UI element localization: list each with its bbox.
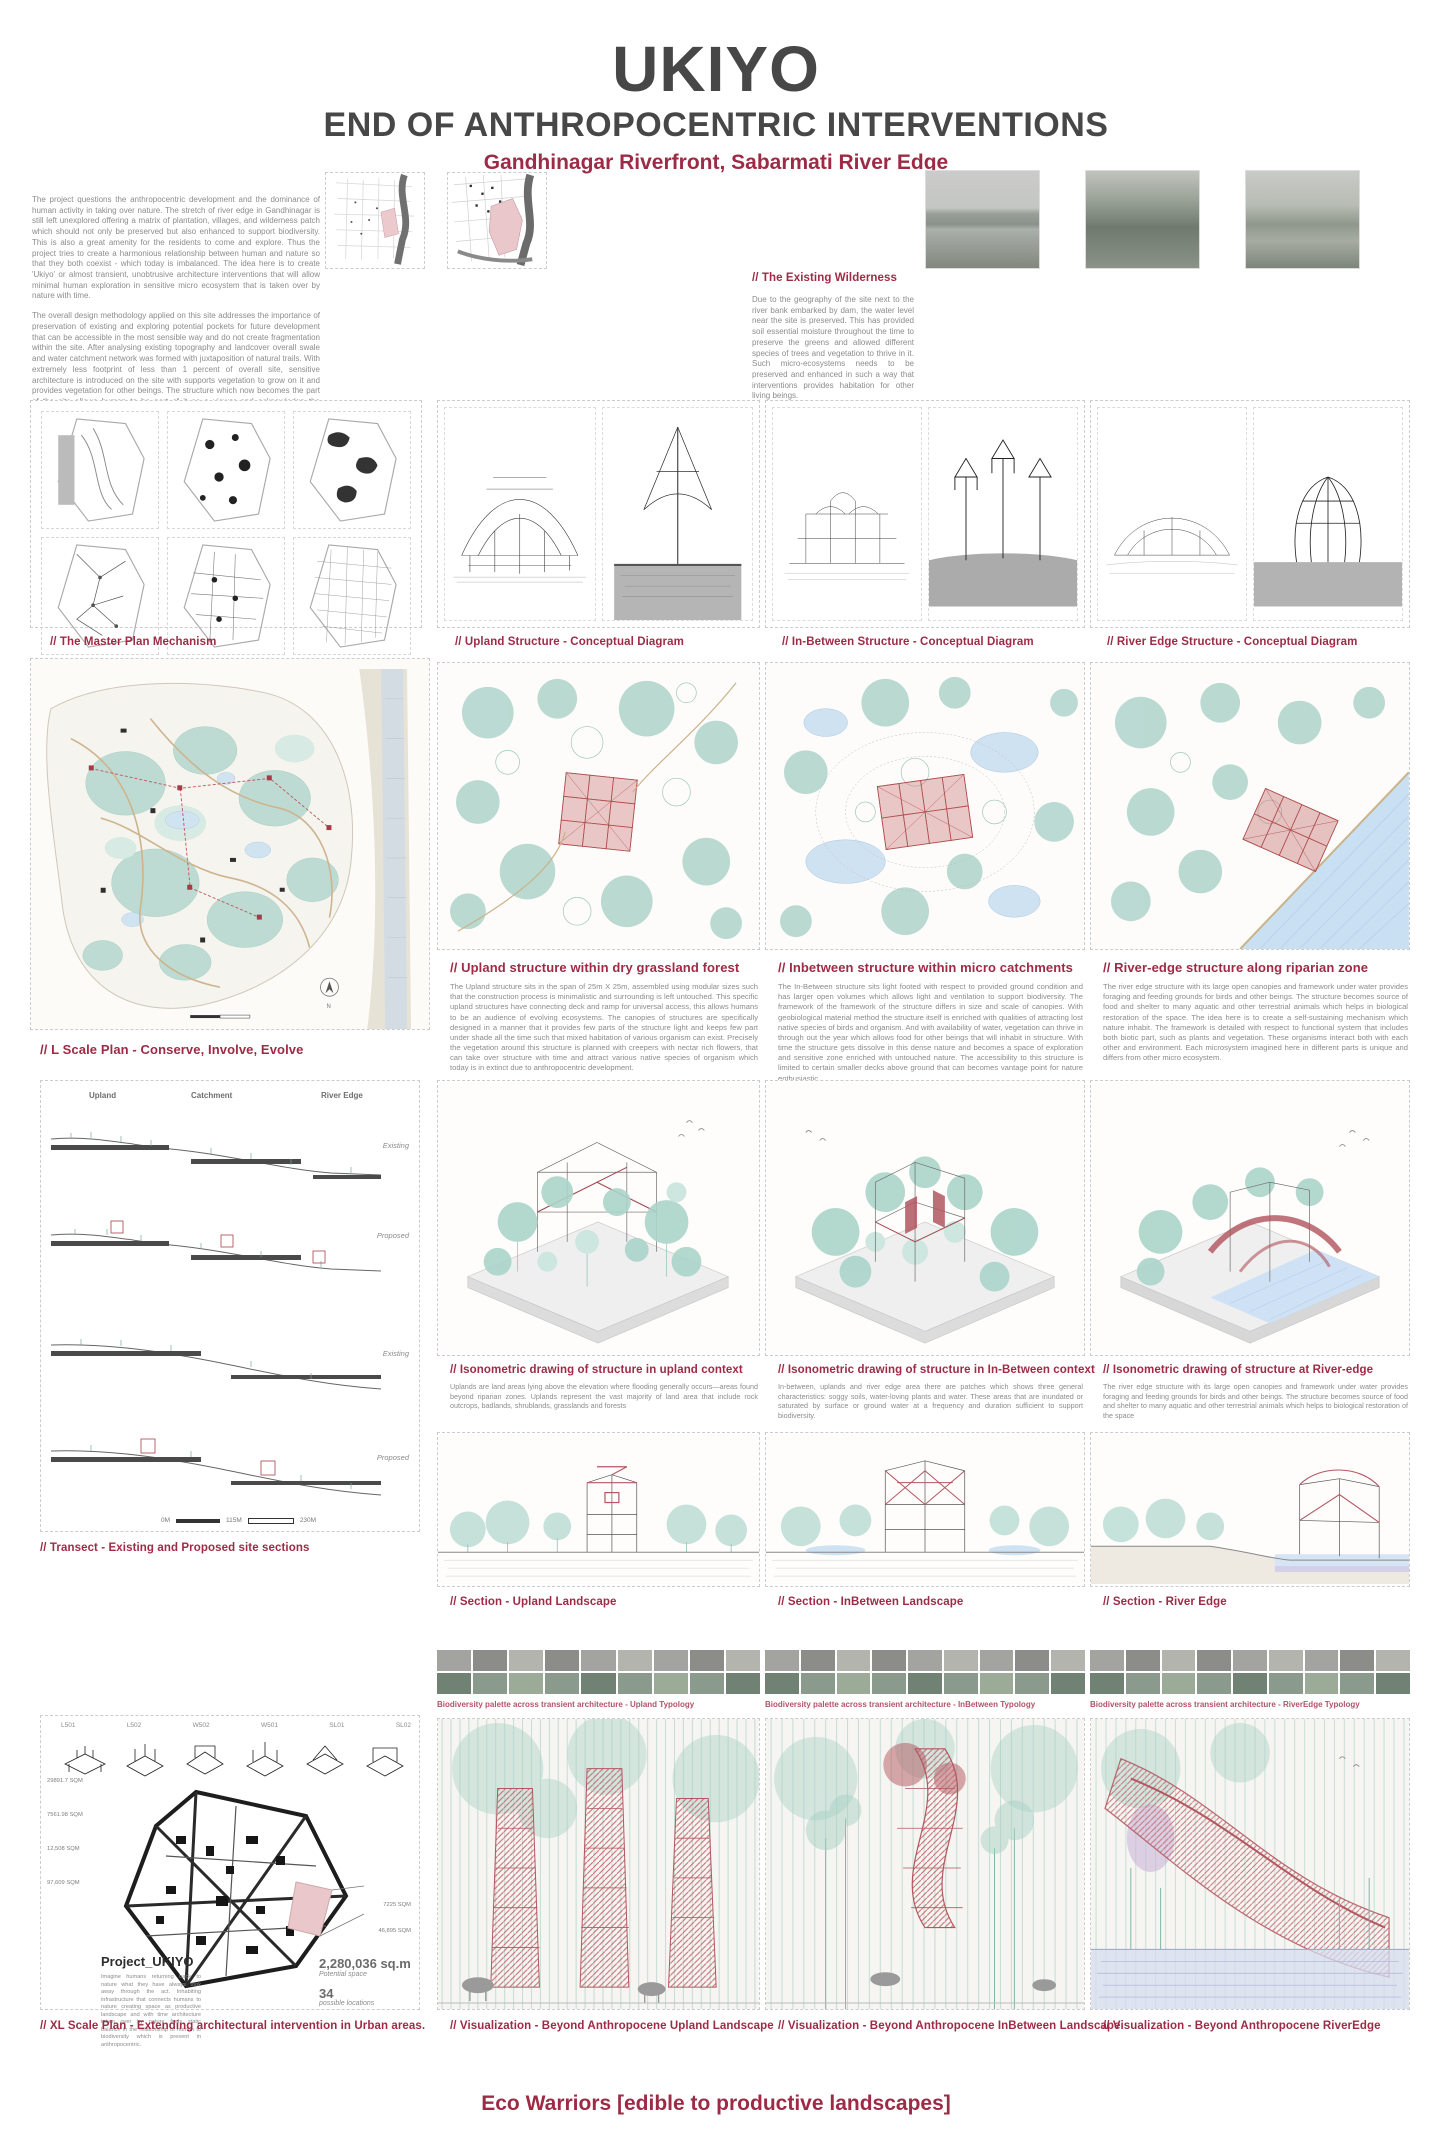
xl-area-right-2: 46,895 SQM <box>378 1928 411 1934</box>
xl-code-5: SL01 <box>329 1722 344 1729</box>
biodiversity-strip-upland <box>437 1650 760 1694</box>
transect-strip-existing-1 <box>51 1109 381 1195</box>
caption-bio-riveredge: Biodiversity palette across transient ar… <box>1090 1700 1360 1709</box>
xl-stat1-label: Potential space <box>319 1971 367 1978</box>
caption-riveredge-concept: // River Edge Structure - Conceptual Dia… <box>1107 636 1357 648</box>
mechanism-map-6 <box>293 537 411 655</box>
caption-bio-inbetween: Biodiversity palette across transient ar… <box>765 1700 1035 1709</box>
caption-viz-riveredge: // Visualization - Beyond Anthropocene R… <box>1103 2020 1381 2032</box>
xl-code-row: L501 L502 W502 W501 SL01 SL02 <box>61 1722 411 1729</box>
biodiversity-strip-riveredge <box>1090 1650 1410 1694</box>
page-title: UKIYO <box>0 32 1432 106</box>
intro-paragraph-1: The project questions the anthropocentri… <box>32 195 320 302</box>
transect-state-3: Existing <box>383 1349 409 1358</box>
mechanism-map-1 <box>41 411 159 529</box>
site-photo-forest <box>1085 170 1200 269</box>
transect-state-2: Proposed <box>377 1231 409 1240</box>
inbetween-concept-sketch <box>772 407 922 621</box>
caption-bio-upland: Biodiversity palette across transient ar… <box>437 1700 694 1709</box>
transect-strip-proposed-1 <box>51 1203 381 1289</box>
transect-state-1: Existing <box>383 1141 409 1150</box>
caption-upland-plan: // Upland structure within dry grassland… <box>450 960 739 975</box>
caption-riveredge-plan: // River-edge structure along riparian z… <box>1103 960 1368 975</box>
caption-xl-plan: // XL Scale Plan - Extending architectur… <box>40 2020 425 2032</box>
wilderness-body: Due to the geography of the site next to… <box>752 295 914 402</box>
transect-zone-riveredge: River Edge <box>321 1091 363 1100</box>
upland-isometric <box>437 1080 760 1356</box>
mechanism-map-3 <box>293 411 411 529</box>
scale-0: 0M <box>161 1517 170 1524</box>
inbetween-plan <box>765 662 1085 950</box>
upland-concept-panel <box>437 400 760 628</box>
xl-code-3: W502 <box>193 1722 210 1729</box>
upland-concept-sketch <box>444 407 596 621</box>
xl-code-2: L502 <box>127 1722 141 1729</box>
caption-inbetween-iso: // Isonometric drawing of structure in I… <box>778 1364 1095 1376</box>
transect-strip-existing-2 <box>51 1319 381 1405</box>
caption-mechanism: // The Master Plan Mechanism <box>50 636 216 648</box>
page-subtitle: END OF ANTHROPOCENTRIC INTERVENTIONS <box>0 106 1432 145</box>
master-plan-mechanism-panel <box>30 400 422 628</box>
xl-project-title: Project_UKIYO <box>101 1954 193 1969</box>
xl-code-6: SL02 <box>396 1722 411 1729</box>
caption-upland-iso: // Isonometric drawing of structure in u… <box>450 1364 743 1376</box>
riveredge-iso-body: The river edge structure with its large … <box>1103 1382 1408 1421</box>
riveredge-concept-sketch <box>1097 407 1247 621</box>
caption-inbetween-concept: // In-Between Structure - Conceptual Dia… <box>782 636 1034 648</box>
riveredge-section <box>1090 1432 1410 1587</box>
transect-scale-bar: 0M 115M 230M <box>161 1517 316 1524</box>
city-map-sketch <box>325 172 425 269</box>
riveredge-plan-body: The river edge structure with its large … <box>1103 982 1408 1063</box>
transect-zone-catchment: Catchment <box>191 1091 232 1100</box>
xl-area-left-3: 12,508 SQM <box>47 1846 80 1852</box>
page-location: Gandhinagar Riverfront, Sabarmati River … <box>0 151 1432 175</box>
caption-upland-concept: // Upland Structure - Conceptual Diagram <box>455 636 684 648</box>
caption-transect: // Transect - Existing and Proposed site… <box>40 1542 309 1554</box>
transect-state-4: Proposed <box>377 1453 409 1462</box>
caption-riveredge-section: // Section - River Edge <box>1103 1596 1227 1608</box>
footer-tagline: Eco Warriors [edible to productive lands… <box>0 2092 1432 2116</box>
site-photo-wetland <box>1245 170 1360 269</box>
scale-115: 115M <box>226 1517 242 1524</box>
wilderness-title: // The Existing Wilderness <box>752 272 922 284</box>
caption-viz-upland: // Visualization - Beyond Anthropocene U… <box>450 2020 774 2032</box>
xl-plan-panel: L501 L502 W502 W501 SL01 SL02 29891.7 SQ… <box>40 1715 420 2010</box>
site-map-sketch <box>447 172 547 269</box>
xl-stat2-label: possible locations <box>319 2000 374 2007</box>
xl-stat1-value: 2,280,036 sq.m <box>319 1956 411 1971</box>
riveredge-isometric <box>1090 1080 1410 1356</box>
caption-inbetween-plan: // Inbetween structure within micro catc… <box>778 960 1073 975</box>
inbetween-plan-body: The In-Between structure sits light foot… <box>778 982 1083 1084</box>
svg-text:N: N <box>326 1004 330 1010</box>
xl-code-4: W501 <box>261 1722 278 1729</box>
upland-plan-body: The Upland structure sits in the span of… <box>450 982 758 1074</box>
upland-concept-elevation <box>602 407 754 621</box>
upland-section <box>437 1432 760 1587</box>
upland-iso-body: Uplands are land areas lying above the e… <box>450 1382 758 1411</box>
viz-upland <box>437 1718 760 2010</box>
xl-area-left-1: 29891.7 SQM <box>47 1778 83 1784</box>
riveredge-plan <box>1090 662 1410 950</box>
caption-inbetween-section: // Section - InBetween Landscape <box>778 1596 963 1608</box>
riveredge-concept-panel <box>1090 400 1410 628</box>
caption-l-scale-plan: // L Scale Plan - Conserve, Involve, Evo… <box>40 1042 303 1057</box>
transect-strip-proposed-2 <box>51 1423 381 1509</box>
l-scale-plan: N <box>30 658 430 1030</box>
riveredge-concept-structure <box>1253 407 1403 621</box>
scale-230: 230M <box>300 1517 316 1524</box>
xl-stat2-value: 34 <box>319 1986 333 2001</box>
viz-inbetween <box>765 1718 1085 2010</box>
xl-area-left-2: 7561.98 SQM <box>47 1812 83 1818</box>
scale-bar-dark <box>176 1519 220 1523</box>
upland-plan <box>437 662 760 950</box>
xl-project-body: Imagine humans returning back to nature … <box>101 1974 201 2049</box>
inbetween-concept-structure <box>928 407 1078 621</box>
poster: UKIYO END OF ANTHROPOCENTRIC INTERVENTIO… <box>0 0 1432 2148</box>
mechanism-map-2 <box>167 411 285 529</box>
inbetween-section <box>765 1432 1085 1587</box>
scale-bar-light <box>248 1518 294 1524</box>
site-photo-lake <box>925 170 1040 269</box>
transect-panel: Upland Catchment River Edge Existing Pro… <box>40 1080 420 1532</box>
inbetween-concept-panel <box>765 400 1085 628</box>
viz-riveredge <box>1090 1718 1410 2010</box>
caption-upland-section: // Section - Upland Landscape <box>450 1596 616 1608</box>
biodiversity-strip-inbetween <box>765 1650 1085 1694</box>
caption-viz-inbetween: // Visualization - Beyond Anthropocene I… <box>778 2020 1121 2032</box>
xl-area-left-4: 97,609 SQM <box>47 1880 80 1886</box>
inbetween-iso-body: In-between, uplands and river edge area … <box>778 1382 1083 1421</box>
transect-zone-upland: Upland <box>89 1091 116 1100</box>
caption-riveredge-iso: // Isonometric drawing of structure at R… <box>1103 1364 1373 1376</box>
xl-code-1: L501 <box>61 1722 75 1729</box>
inbetween-isometric <box>765 1080 1085 1356</box>
header: UKIYO END OF ANTHROPOCENTRIC INTERVENTIO… <box>0 32 1432 175</box>
xl-area-right-1: 7225 SQM <box>383 1902 411 1908</box>
